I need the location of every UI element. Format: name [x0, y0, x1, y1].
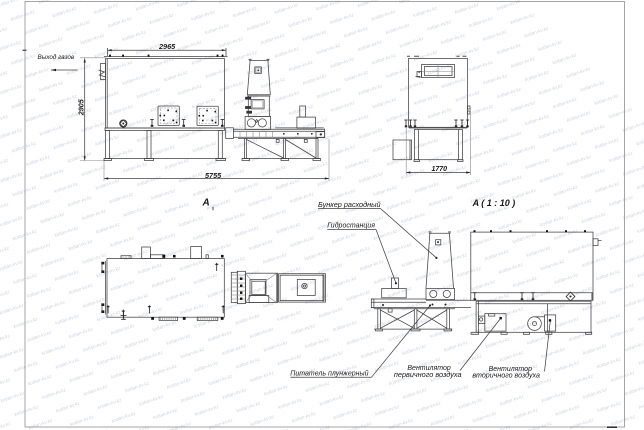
svg-text:5755: 5755: [205, 171, 222, 180]
svg-text:1770: 1770: [432, 166, 448, 173]
svg-text:2965: 2965: [158, 42, 176, 51]
svg-text:A ( 1 : 10 ): A ( 1 : 10 ): [472, 198, 516, 208]
svg-text:A: A: [202, 198, 210, 209]
svg-text:Питатель плунжерный: Питатель плунжерный: [290, 370, 368, 378]
svg-text:Выход газов: Выход газов: [38, 53, 75, 61]
svg-text:первичного воздуха: первичного воздуха: [394, 370, 462, 379]
svg-text:2905: 2905: [76, 98, 85, 116]
svg-text:вторичного воздуха: вторичного воздуха: [472, 371, 540, 379]
svg-text:Гидростанция: Гидростанция: [327, 222, 375, 230]
svg-text:Бункер расходный: Бункер расходный: [318, 200, 381, 209]
